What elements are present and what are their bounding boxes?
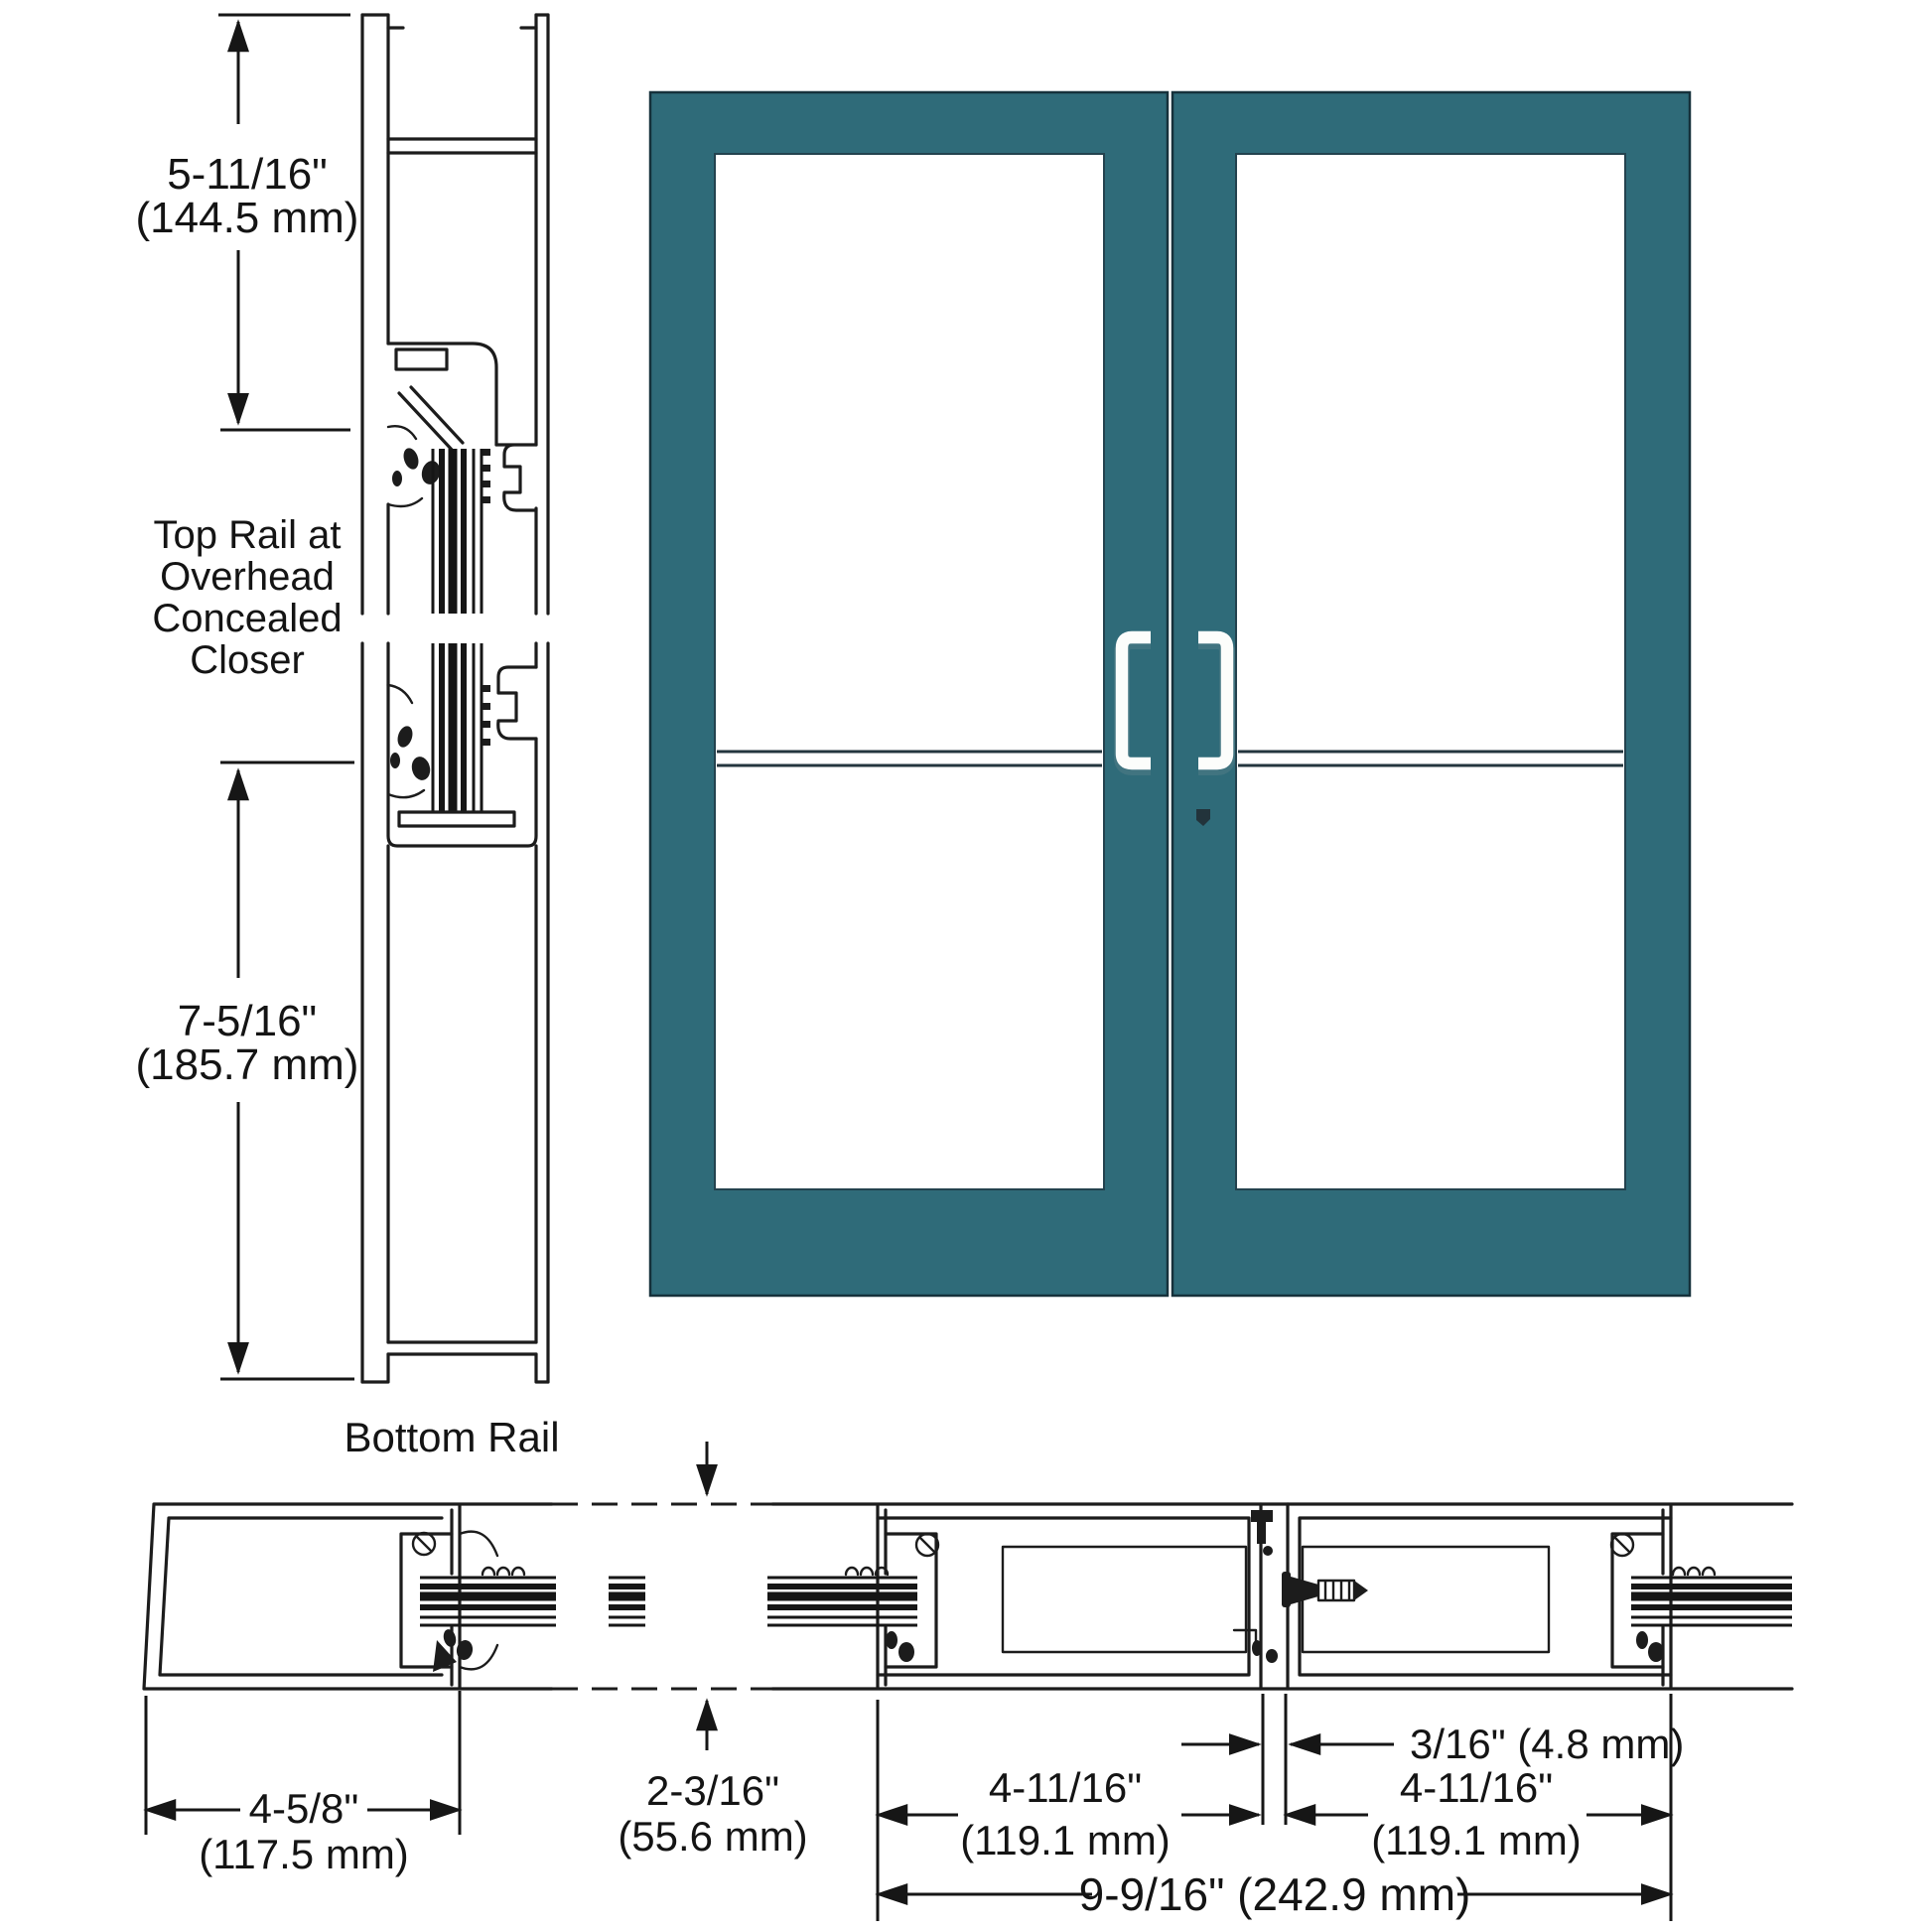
hinge-stile-gaskets bbox=[433, 1628, 475, 1672]
dim-thickness-mm: (55.6 mm) bbox=[618, 1813, 807, 1860]
screw-threads bbox=[1318, 1581, 1354, 1600]
glass-section-upper bbox=[433, 449, 482, 614]
dim-thickness-in: 2-3/16" bbox=[646, 1767, 779, 1814]
right-door-glass bbox=[1236, 154, 1625, 1189]
dim-lock-stile-left-mm: (119.1 mm) bbox=[960, 1817, 1171, 1863]
top-rail-top-flanges bbox=[362, 15, 548, 28]
left-door-glass bbox=[715, 154, 1104, 1189]
svg-text:Concealed: Concealed bbox=[152, 597, 342, 640]
bottom-rail-inner-walls bbox=[388, 846, 536, 1342]
right-stile-gaskets bbox=[1636, 1631, 1664, 1662]
dim-pair-total: 9-9/16" (242.9 mm) bbox=[1079, 1868, 1471, 1920]
closer-channel bbox=[396, 349, 447, 369]
dim-bottom-rail-in: 7-5/16" bbox=[178, 997, 317, 1045]
bottom-rail-glazing-hook bbox=[498, 667, 536, 739]
right-stile-screw-slot bbox=[1615, 1538, 1629, 1552]
screw-tip bbox=[1354, 1581, 1368, 1600]
closer-body-outline bbox=[388, 344, 496, 445]
left-stile-inner-cell bbox=[1003, 1547, 1246, 1652]
bottom-rail-dimension: 7-5/16" (185.7 mm) bbox=[136, 762, 359, 1379]
bottom-rail-bottom-web bbox=[388, 1342, 536, 1354]
dim-top-rail-in: 5-11/16" bbox=[167, 150, 328, 199]
top-rail-label: Top Rail at Overhead Concealed Closer bbox=[152, 513, 342, 682]
glass-plan-hatch bbox=[420, 1578, 1792, 1625]
top-rail-h-divider bbox=[388, 139, 536, 153]
dim-lock-stile-right-in: 4-11/16" bbox=[1400, 1764, 1553, 1811]
dim-lock-stile-left-in: 4-11/16" bbox=[989, 1764, 1142, 1811]
closer-arm bbox=[399, 387, 463, 451]
right-stile-gasket-ribs bbox=[1673, 1568, 1715, 1575]
bottom-rail-feet bbox=[362, 1354, 548, 1382]
dim-lock-stile-right-mm: (119.1 mm) bbox=[1371, 1817, 1582, 1863]
top-rail-glazing-hook bbox=[496, 445, 536, 510]
dim-top-rail-mm: (144.5 mm) bbox=[136, 194, 359, 242]
dim-meeting-gap: 3/16" (4.8 mm) bbox=[1410, 1721, 1684, 1767]
meeting-stiles-plan-section bbox=[420, 1504, 1792, 1689]
dim-jamb-stile-mm: (117.5 mm) bbox=[199, 1831, 409, 1877]
section-break-lines bbox=[552, 1504, 772, 1689]
svg-text:Closer: Closer bbox=[190, 638, 305, 682]
screw-cone bbox=[1291, 1577, 1318, 1604]
svg-text:Overhead: Overhead bbox=[160, 555, 335, 599]
glass-section-lower bbox=[433, 643, 482, 812]
top-rail-section-drawing bbox=[362, 15, 548, 614]
door-pair-elevation bbox=[650, 92, 1690, 1296]
left-stile-gasket-ribs bbox=[846, 1568, 888, 1575]
svg-text:Top Rail at: Top Rail at bbox=[154, 513, 342, 557]
left-stile-gaskets bbox=[886, 1631, 914, 1662]
dim-bottom-rail-mm: (185.7 mm) bbox=[136, 1040, 359, 1089]
glazing-screw-slot bbox=[417, 1537, 431, 1551]
pair-total-dimension: 9-9/16" (242.9 mm) bbox=[878, 1868, 1671, 1920]
dim-jamb-stile-in: 4-5/8" bbox=[249, 1785, 359, 1832]
jamb-stile-dimension: 4-5/8" (117.5 mm) bbox=[146, 1691, 460, 1877]
left-stile-screw-slot bbox=[920, 1538, 934, 1552]
gasket-ribs bbox=[483, 1568, 524, 1575]
top-rail-dimension: 5-11/16" (144.5 mm) bbox=[136, 15, 359, 430]
glazing-pocket-plate bbox=[399, 812, 514, 826]
door-spec-diagram: 5-11/16" (144.5 mm) Top Rail at Overhead… bbox=[0, 0, 1932, 1932]
bottom-rail-section-drawing bbox=[362, 643, 548, 1382]
bottom-rail-label: Bottom Rail bbox=[344, 1414, 559, 1460]
